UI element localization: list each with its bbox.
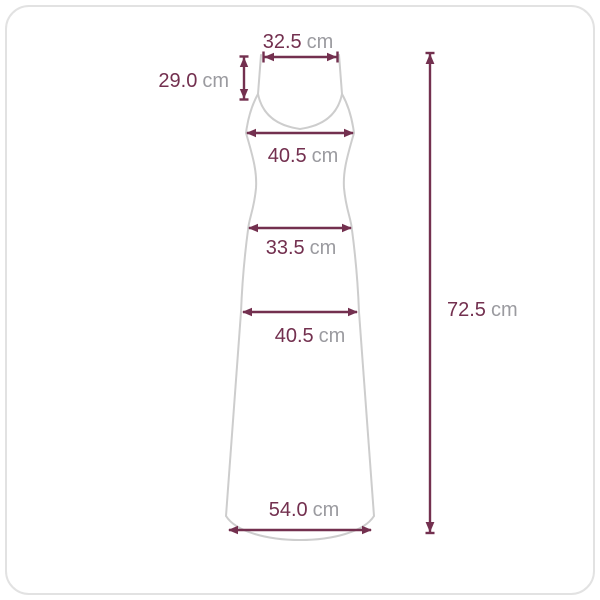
- dress-outline: [226, 55, 374, 540]
- label-waist-width: 33.5cm: [266, 238, 337, 258]
- label-hem-width: 54.0cm: [269, 500, 340, 520]
- label-hip-width: 40.5cm: [275, 326, 346, 346]
- dim-strap-length: [240, 57, 249, 100]
- hip-width-value: 40.5: [275, 325, 314, 347]
- hem-width-unit: cm: [313, 499, 340, 521]
- bust-width-value: 40.5: [268, 145, 307, 167]
- shoulder-width-unit: cm: [307, 31, 334, 53]
- strap-length-value: 29.0: [158, 70, 197, 92]
- dim-shoulder-width: [264, 52, 338, 63]
- arrow-right-icon: [348, 308, 358, 316]
- left-side-seam: [226, 133, 256, 516]
- arrow-up-icon: [240, 57, 248, 67]
- waist-width-value: 33.5: [266, 237, 305, 259]
- arrow-down-icon: [240, 89, 248, 99]
- waist-width-unit: cm: [310, 237, 337, 259]
- left-strap-line: [258, 55, 261, 94]
- hip-width-unit: cm: [319, 325, 346, 347]
- total-length-value: 72.5: [447, 299, 486, 321]
- size-chart-diagram: 32.5cm 29.0cm 40.5cm 33.5cm 40.5cm 54.0c…: [0, 0, 600, 600]
- dim-total-length: [426, 53, 435, 533]
- right-side-seam: [344, 133, 374, 516]
- label-bust-width: 40.5cm: [268, 146, 339, 166]
- right-strap-line: [339, 55, 342, 94]
- label-total-length: 72.5cm: [447, 300, 518, 320]
- dim-bust-width: [246, 129, 354, 137]
- arrow-left-icon: [228, 526, 238, 534]
- label-strap-length: 29.0cm: [158, 71, 229, 91]
- arrow-up-icon: [426, 54, 435, 65]
- hem-width-value: 54.0: [269, 499, 308, 521]
- total-length-unit: cm: [491, 299, 518, 321]
- arrow-down-icon: [426, 522, 435, 533]
- arrow-left-icon: [242, 308, 252, 316]
- arrow-right-icon: [327, 53, 337, 61]
- right-armhole-curve: [342, 94, 354, 133]
- strap-length-unit: cm: [202, 70, 229, 92]
- arrow-right-icon: [362, 526, 372, 534]
- label-shoulder-width: 32.5cm: [263, 32, 334, 52]
- bust-width-unit: cm: [312, 145, 339, 167]
- dim-waist-width: [248, 224, 352, 232]
- arrow-left-icon: [264, 53, 274, 61]
- dim-hip-width: [242, 308, 358, 316]
- v-neckline: [258, 94, 342, 129]
- shoulder-width-value: 32.5: [263, 31, 302, 53]
